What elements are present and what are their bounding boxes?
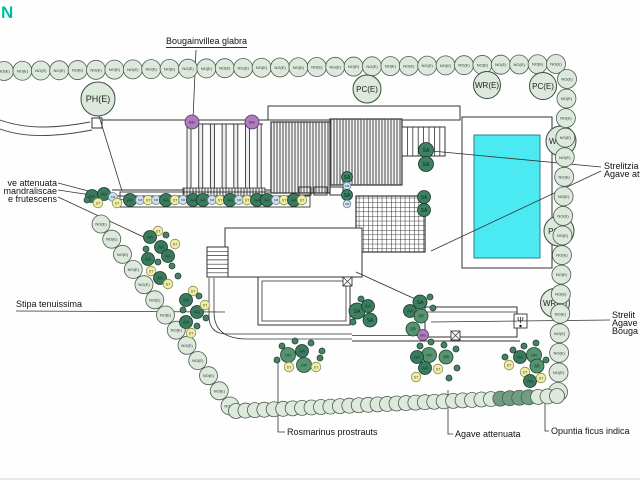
svg-text:AA: AA	[158, 245, 164, 250]
plant-SA: SA	[418, 204, 431, 217]
plant-dot	[203, 315, 209, 321]
svg-text:NO(E): NO(E)	[109, 67, 121, 72]
svg-text:SM: SM	[154, 198, 159, 202]
plant-ST: ST	[504, 360, 514, 370]
svg-text:BG: BG	[189, 119, 195, 124]
svg-text:NO(E): NO(E)	[256, 65, 268, 70]
plant-dot	[502, 354, 508, 360]
plant-ST: ST	[170, 239, 180, 249]
svg-text:NO(E): NO(E)	[201, 66, 213, 71]
svg-text:AA: AA	[147, 235, 153, 240]
svg-text:AA: AA	[414, 355, 420, 360]
svg-text:SM: SM	[181, 198, 186, 202]
svg-text:AA: AA	[101, 192, 107, 197]
svg-text:AA: AA	[183, 298, 189, 303]
svg-text:AA: AA	[527, 379, 533, 384]
plant-dot	[84, 197, 90, 203]
plant-SR: SR	[530, 359, 544, 373]
drain-symbol	[343, 277, 352, 286]
hedge-row-right: NO(E)NO(E)NO(E)NO(E)NO(E)NO(E)NO(E)NO(E)…	[549, 70, 577, 402]
plant-SA: SA	[418, 191, 431, 204]
svg-text:AA: AA	[407, 309, 413, 314]
svg-text:NO(E): NO(E)	[560, 135, 572, 140]
svg-text:AA: AA	[365, 304, 371, 309]
plant-dot	[430, 305, 436, 311]
plant-dot	[180, 307, 186, 313]
plant-dot	[169, 263, 175, 269]
plant-dot	[196, 293, 202, 299]
hedge-circle	[550, 389, 565, 404]
plant-SR: SR	[414, 309, 428, 323]
plant-BG: BG	[245, 115, 259, 129]
svg-text:NO(E): NO(E)	[550, 62, 562, 67]
svg-text:SM: SM	[210, 198, 215, 202]
svg-text:WR(E): WR(E)	[475, 81, 499, 90]
plant-AA: AA	[180, 316, 193, 329]
svg-text:NO(E): NO(E)	[214, 388, 226, 393]
plant-dot	[446, 375, 452, 381]
svg-text:Ψ: Ψ	[517, 316, 524, 325]
svg-text:NO(E): NO(E)	[164, 66, 176, 71]
svg-text:NO(E): NO(E)	[555, 311, 567, 316]
plant-OFI: OFI	[422, 348, 437, 363]
plant-AA: AA	[124, 194, 137, 207]
hedge-row-bottom-scallop	[229, 389, 565, 419]
plant-ST: ST	[536, 373, 546, 383]
svg-text:NO(E): NO(E)	[149, 297, 161, 302]
svg-text:NO(E): NO(E)	[146, 67, 158, 72]
svg-text:NO(E): NO(E)	[348, 64, 360, 69]
svg-text:NO(E): NO(E)	[385, 64, 397, 69]
plant-AA: AA	[411, 351, 424, 364]
building-structures: Ψ	[0, 106, 552, 341]
svg-text:NO(E): NO(E)	[553, 350, 565, 355]
svg-text:NO(E): NO(E)	[128, 267, 140, 272]
svg-text:NO(E): NO(E)	[495, 62, 507, 67]
svg-text:NO(E): NO(E)	[330, 64, 342, 69]
svg-text:AA: AA	[422, 366, 428, 371]
svg-text:SR: SR	[410, 327, 416, 332]
svg-text:NO(E): NO(E)	[160, 313, 172, 318]
plant-AA: AA	[142, 253, 155, 266]
plant-dot	[427, 294, 433, 300]
svg-text:NO(E): NO(E)	[560, 116, 572, 121]
svg-text:AA: AA	[145, 257, 151, 262]
svg-text:NO(E): NO(E)	[559, 174, 571, 179]
svg-text:NO(E): NO(E)	[181, 343, 193, 348]
svg-text:OFI: OFI	[531, 353, 537, 357]
plant-BG: BG	[418, 330, 429, 341]
svg-text:NO(E): NO(E)	[555, 292, 567, 297]
svg-text:AA: AA	[89, 194, 95, 199]
plant-SM: SM	[343, 182, 351, 190]
plant-ST: ST	[93, 198, 103, 208]
svg-text:AA: AA	[194, 310, 200, 315]
plant-ST: ST	[433, 364, 443, 374]
svg-text:NO(E): NO(E)	[127, 67, 139, 72]
svg-text:SA: SA	[421, 195, 428, 201]
plant-AA: AA	[296, 345, 309, 358]
svg-text:AA: AA	[163, 198, 169, 203]
plant-dot	[350, 319, 356, 325]
svg-text:SM: SM	[138, 198, 143, 202]
svg-text:AA: AA	[165, 254, 171, 259]
svg-text:NO(E): NO(E)	[532, 62, 544, 67]
plant-ST: ST	[200, 300, 210, 310]
plant-dot	[521, 343, 527, 349]
svg-text:NO(E): NO(E)	[422, 63, 434, 68]
svg-text:AA: AA	[200, 198, 206, 203]
svg-text:SA: SA	[421, 208, 428, 214]
svg-text:AA: AA	[227, 198, 233, 203]
svg-text:AA: AA	[517, 355, 523, 360]
svg-text:NO(E): NO(E)	[554, 331, 566, 336]
plant-dot	[163, 232, 169, 238]
svg-text:NO(E): NO(E)	[90, 67, 102, 72]
svg-text:NO(E): NO(E)	[17, 68, 29, 73]
svg-text:SM: SM	[345, 184, 350, 188]
svg-text:NO(E): NO(E)	[54, 68, 66, 73]
svg-text:BG: BG	[249, 119, 255, 124]
plant-dot	[510, 347, 516, 353]
plant-dot	[317, 355, 323, 361]
svg-text:OFI: OFI	[285, 353, 291, 357]
svg-text:NO(E): NO(E)	[561, 77, 573, 82]
svg-text:SA: SA	[423, 148, 430, 154]
utility-circle-pce: PC(E)	[530, 73, 557, 100]
svg-text:SA: SA	[367, 318, 374, 324]
plant-dot	[453, 346, 459, 352]
svg-text:PH(E): PH(E)	[86, 94, 111, 104]
plant-dot	[358, 296, 364, 302]
plant-dot	[319, 348, 325, 354]
svg-text:NO(E): NO(E)	[238, 65, 250, 70]
plant-SM: SM	[343, 200, 351, 208]
svg-text:AA: AA	[299, 349, 305, 354]
svg-text:NO(E): NO(E)	[557, 213, 569, 218]
svg-text:NO(E): NO(E)	[95, 222, 107, 227]
svg-text:NO(E): NO(E)	[311, 65, 323, 70]
svg-text:NO(E): NO(E)	[366, 64, 378, 69]
plant-AA: AA	[524, 375, 537, 388]
plant-SR: SR	[439, 350, 453, 364]
plant-dot	[279, 343, 285, 349]
svg-text:SA: SA	[417, 300, 424, 306]
svg-text:NO(E): NO(E)	[35, 68, 47, 73]
plant-dot	[543, 357, 549, 363]
leader-bougainvillea	[193, 50, 196, 119]
svg-text:SA: SA	[354, 309, 361, 315]
svg-text:NO(E): NO(E)	[556, 253, 568, 258]
svg-text:AA: AA	[183, 320, 189, 325]
plant-AA: AA	[419, 362, 432, 375]
svg-text:NO(E): NO(E)	[219, 66, 231, 71]
svg-text:BG: BG	[420, 332, 426, 337]
svg-text:NO(E): NO(E)	[192, 358, 204, 363]
svg-text:NO(E): NO(E)	[403, 63, 415, 68]
svg-text:AA: AA	[190, 198, 196, 203]
svg-text:SR: SR	[443, 355, 449, 360]
plant-dot	[194, 323, 200, 329]
plant-dot	[441, 342, 447, 348]
plant-dot	[274, 357, 280, 363]
plant-dot	[155, 259, 161, 265]
plant-AA: AA	[144, 231, 157, 244]
plant-BG: BG	[185, 115, 199, 129]
svg-text:NO(E): NO(E)	[477, 62, 489, 67]
svg-text:NO(E): NO(E)	[274, 65, 286, 70]
plant-SA: SA	[419, 157, 434, 172]
plant-AA: AA	[162, 250, 175, 263]
svg-text:NO(E): NO(E)	[561, 96, 573, 101]
svg-text:NO(E): NO(E)	[557, 233, 569, 238]
leader-rosmarinus	[278, 362, 285, 432]
svg-text:AA: AA	[157, 276, 163, 281]
svg-text:AA: AA	[291, 198, 297, 203]
svg-text:NO(E): NO(E)	[72, 68, 84, 73]
svg-text:NO(E): NO(E)	[559, 155, 571, 160]
plant-SA: SA	[342, 172, 353, 183]
svg-text:NO(E): NO(E)	[138, 282, 150, 287]
utility-circle-phe: PH(E)	[81, 82, 115, 116]
utility-circle-wre: WR(E)	[474, 72, 501, 99]
svg-text:NO(E): NO(E)	[171, 328, 183, 333]
svg-text:NO(E): NO(E)	[182, 66, 194, 71]
svg-text:NO(E): NO(E)	[293, 65, 305, 70]
drain-symbol	[451, 331, 460, 340]
plant-ST: ST	[186, 328, 196, 338]
plant-ST: ST	[112, 198, 122, 208]
svg-text:SA: SA	[423, 162, 430, 168]
plant-dot	[417, 343, 423, 349]
plant-ST: ST	[311, 362, 321, 372]
svg-text:NO(E): NO(E)	[106, 237, 118, 242]
plant-dot	[428, 339, 434, 345]
svg-text:NO(E): NO(E)	[0, 69, 10, 74]
svg-text:NO(E): NO(E)	[458, 63, 470, 68]
svg-text:SR: SR	[418, 314, 424, 319]
svg-text:AA: AA	[254, 198, 260, 203]
svg-text:NO(E): NO(E)	[117, 252, 129, 257]
site-plan-canvas: Ψ WR(E)PC(E)WR(E) NO(E)NO(E)NO(E)NO(E)NO…	[0, 0, 640, 480]
plant-ST: ST	[297, 195, 307, 205]
plant-SA: SA	[342, 190, 353, 201]
plant-OFI: OFI	[297, 358, 312, 373]
plant-dot	[308, 340, 314, 346]
svg-text:SA: SA	[344, 175, 351, 181]
plant-AA: AA	[180, 294, 193, 307]
svg-text:NO(E): NO(E)	[203, 373, 215, 378]
plant-dot	[143, 246, 149, 252]
svg-text:NO(E): NO(E)	[440, 63, 452, 68]
svg-text:OFI: OFI	[301, 363, 307, 367]
svg-text:SM: SM	[237, 198, 242, 202]
plant-AA: AA	[362, 300, 375, 313]
plant-dot	[533, 340, 539, 346]
svg-text:NO(E): NO(E)	[558, 194, 570, 199]
svg-text:SA: SA	[344, 193, 351, 199]
plant-ST: ST	[284, 362, 294, 372]
plant-dot	[175, 273, 181, 279]
plant-OFI: OFI	[281, 348, 296, 363]
svg-text:AA: AA	[264, 198, 270, 203]
svg-text:SM: SM	[345, 202, 350, 206]
svg-text:AA: AA	[127, 198, 133, 203]
utility-circle-pce: PC(E)	[353, 75, 381, 103]
svg-text:NO(E): NO(E)	[556, 272, 568, 277]
plant-AA: AA	[514, 351, 527, 364]
svg-text:PC(E): PC(E)	[356, 85, 378, 94]
svg-text:NO(E): NO(E)	[553, 370, 565, 375]
plant-ST: ST	[163, 279, 173, 289]
svg-text:NO(E): NO(E)	[514, 62, 526, 67]
svg-text:SR: SR	[534, 364, 540, 369]
svg-text:SM: SM	[274, 198, 279, 202]
svg-text:OFI: OFI	[426, 353, 432, 357]
leader-ph	[99, 116, 122, 191]
svg-text:PC(E): PC(E)	[532, 82, 554, 91]
plant-dot	[292, 338, 298, 344]
plant-dot	[454, 365, 460, 371]
plant-SA: SA	[363, 313, 377, 327]
plant-ST: ST	[411, 372, 421, 382]
plant-SA: SA	[419, 143, 434, 158]
